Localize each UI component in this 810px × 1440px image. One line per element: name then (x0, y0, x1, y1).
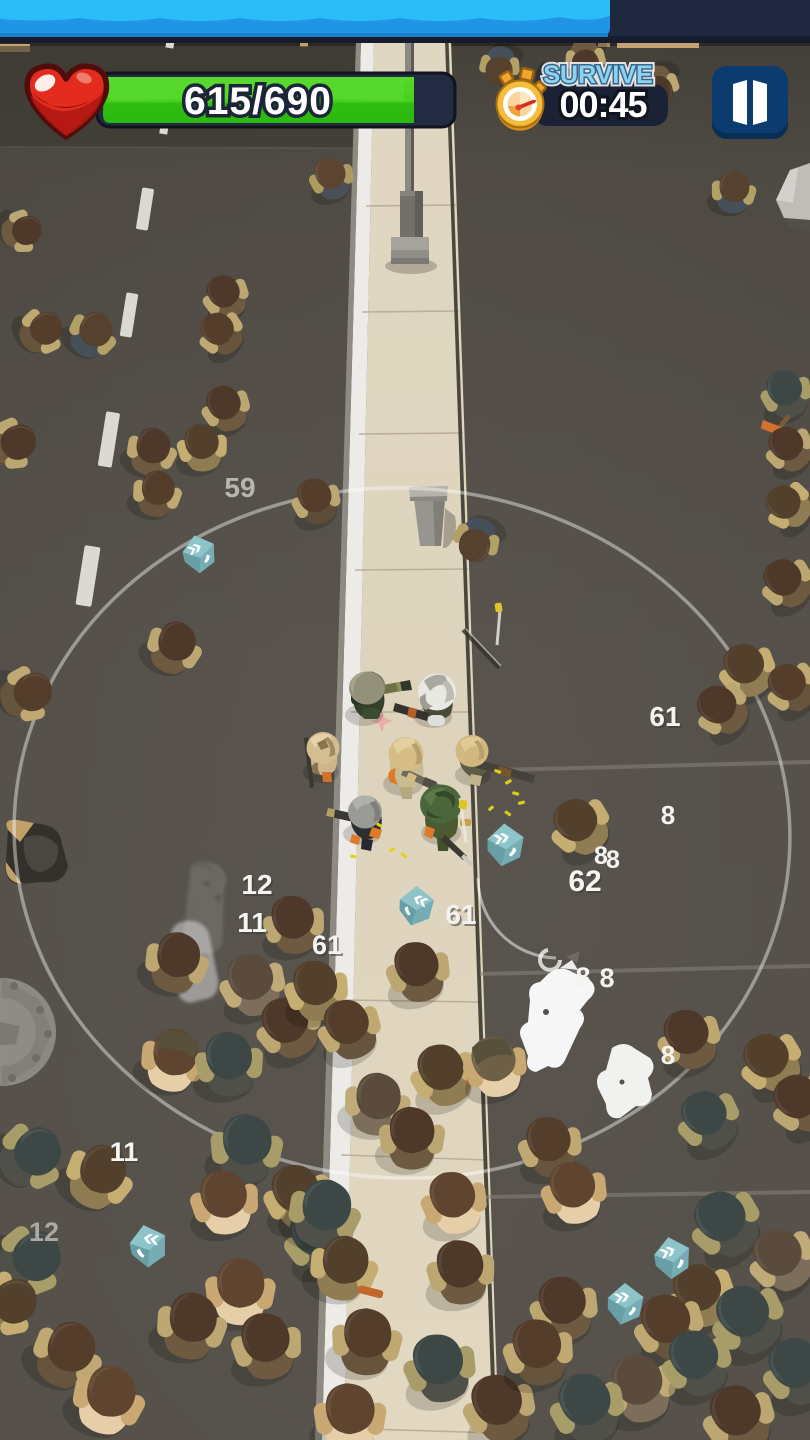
svg-text:61: 61 (312, 930, 342, 960)
svg-text:8: 8 (661, 800, 675, 830)
svg-text:8: 8 (599, 963, 614, 993)
svg-text:00:45: 00:45 (559, 84, 647, 125)
svg-text:8: 8 (575, 962, 590, 992)
svg-text:61: 61 (649, 701, 680, 732)
svg-text:615/690: 615/690 (184, 80, 332, 123)
svg-text:11: 11 (110, 1137, 139, 1167)
svg-text:8: 8 (661, 1040, 675, 1070)
svg-text:12: 12 (241, 869, 272, 900)
svg-text:8: 8 (606, 846, 620, 874)
svg-text:61: 61 (445, 899, 476, 930)
svg-text:59: 59 (224, 472, 255, 503)
svg-text:62: 62 (568, 865, 601, 898)
svg-text:12: 12 (29, 1217, 59, 1247)
svg-text:11: 11 (237, 907, 267, 938)
